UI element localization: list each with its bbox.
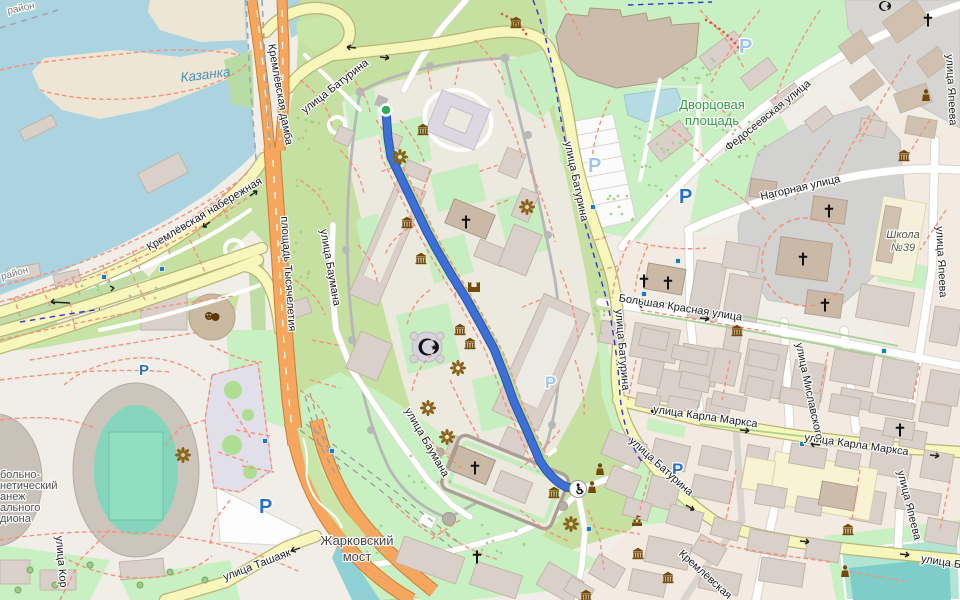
svg-text:№39: №39 [891,242,915,254]
svg-text:мост: мост [343,549,372,564]
svg-text:площадь: площадь [685,113,740,128]
svg-text:диона: диона [0,513,32,525]
svg-text:P: P [139,362,149,379]
svg-text:Дворцовая: Дворцовая [679,97,745,112]
svg-text:P: P [588,155,601,177]
svg-text:Жарковский: Жарковский [320,533,393,548]
svg-text:P: P [259,496,272,518]
svg-text:Школа: Школа [886,229,920,241]
svg-text:P: P [739,36,752,58]
svg-text:P: P [679,186,692,208]
svg-text:P: P [545,373,556,392]
